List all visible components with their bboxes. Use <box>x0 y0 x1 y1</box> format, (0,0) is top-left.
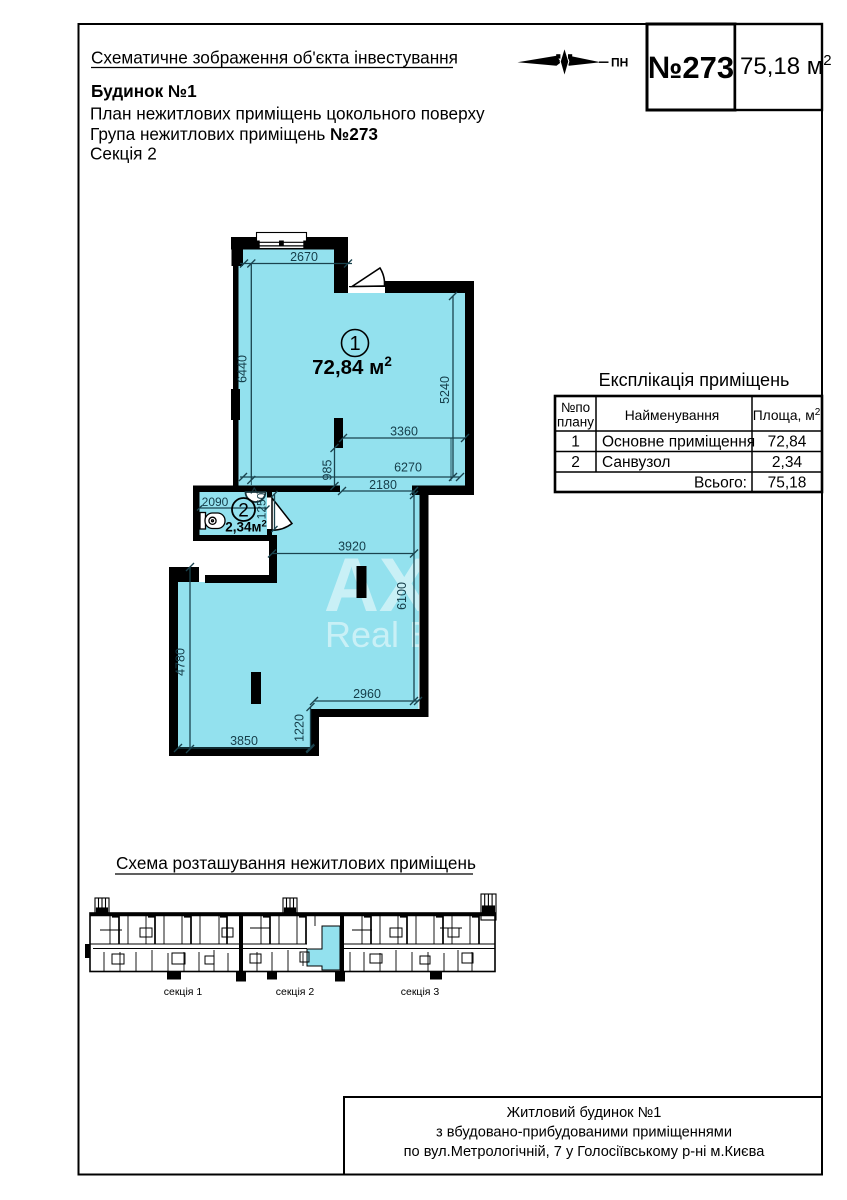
svg-text:Секція 2: Секція 2 <box>90 144 157 164</box>
svg-text:Схематичне зображення об'єкта: Схематичне зображення об'єкта інвестуван… <box>91 48 458 68</box>
svg-text:плану: плану <box>557 415 594 430</box>
svg-text:Найменування: Найменування <box>625 408 720 423</box>
svg-text:2: 2 <box>571 454 580 471</box>
svg-text:2960: 2960 <box>353 687 381 701</box>
svg-text:4780: 4780 <box>174 648 188 676</box>
svg-text:2090: 2090 <box>202 495 229 509</box>
svg-text:Всього:: Всього: <box>694 475 747 492</box>
svg-text:1220: 1220 <box>293 714 307 742</box>
svg-text:3850: 3850 <box>230 734 258 748</box>
svg-text:1: 1 <box>571 434 580 451</box>
svg-text:72,84 м2: 72,84 м2 <box>312 354 392 379</box>
svg-text:Будинок №1: Будинок №1 <box>91 81 197 101</box>
svg-text:Санвузол: Санвузол <box>602 454 670 471</box>
svg-text:Експлікація приміщень: Експлікація приміщень <box>599 370 790 390</box>
svg-text:75,18 м2: 75,18 м2 <box>740 52 832 80</box>
svg-text:План нежитлових приміщень цоко: План нежитлових приміщень цокольного пов… <box>90 104 485 124</box>
svg-text:з вбудовано-прибудованими прим: з вбудовано-прибудованими приміщеннями <box>436 1125 732 1141</box>
svg-text:Основне приміщення: Основне приміщення <box>602 434 755 451</box>
svg-text:№по: №по <box>561 400 590 415</box>
svg-text:1: 1 <box>349 333 360 355</box>
svg-text:секція 1: секція 1 <box>164 986 203 998</box>
svg-text:ПН: ПН <box>611 56 628 70</box>
svg-text:75,18: 75,18 <box>768 475 807 492</box>
svg-text:по вул.Метрологічній, 7 у Голо: по вул.Метрологічній, 7 у Голосіївському… <box>404 1144 766 1160</box>
svg-text:Real E: Real E <box>325 614 433 655</box>
svg-text:6440: 6440 <box>236 355 250 383</box>
svg-text:№273: №273 <box>648 50 734 85</box>
svg-text:секція 2: секція 2 <box>276 986 315 998</box>
svg-text:6100: 6100 <box>395 582 409 610</box>
svg-text:6270: 6270 <box>394 461 422 475</box>
svg-text:3920: 3920 <box>338 540 366 554</box>
svg-text:секція 3: секція 3 <box>401 986 440 998</box>
svg-text:Схема розташування нежитлових: Схема розташування нежитлових приміщень <box>116 853 476 873</box>
svg-text:1250: 1250 <box>255 492 269 519</box>
svg-text:5240: 5240 <box>438 376 452 404</box>
svg-text:2: 2 <box>238 501 249 522</box>
svg-text:2180: 2180 <box>369 478 397 492</box>
svg-text:2,34м2: 2,34м2 <box>225 519 267 535</box>
svg-text:985: 985 <box>321 460 335 481</box>
svg-text:Площа, м2: Площа, м2 <box>753 407 821 423</box>
svg-text:3360: 3360 <box>390 425 418 439</box>
svg-text:Житловий будинок №1: Житловий будинок №1 <box>507 1105 662 1121</box>
svg-text:2,34: 2,34 <box>772 454 803 471</box>
svg-text:2670: 2670 <box>290 250 318 264</box>
svg-text:72,84: 72,84 <box>768 434 807 451</box>
svg-text:Група нежитлових приміщень №27: Група нежитлових приміщень №273 <box>90 124 378 144</box>
